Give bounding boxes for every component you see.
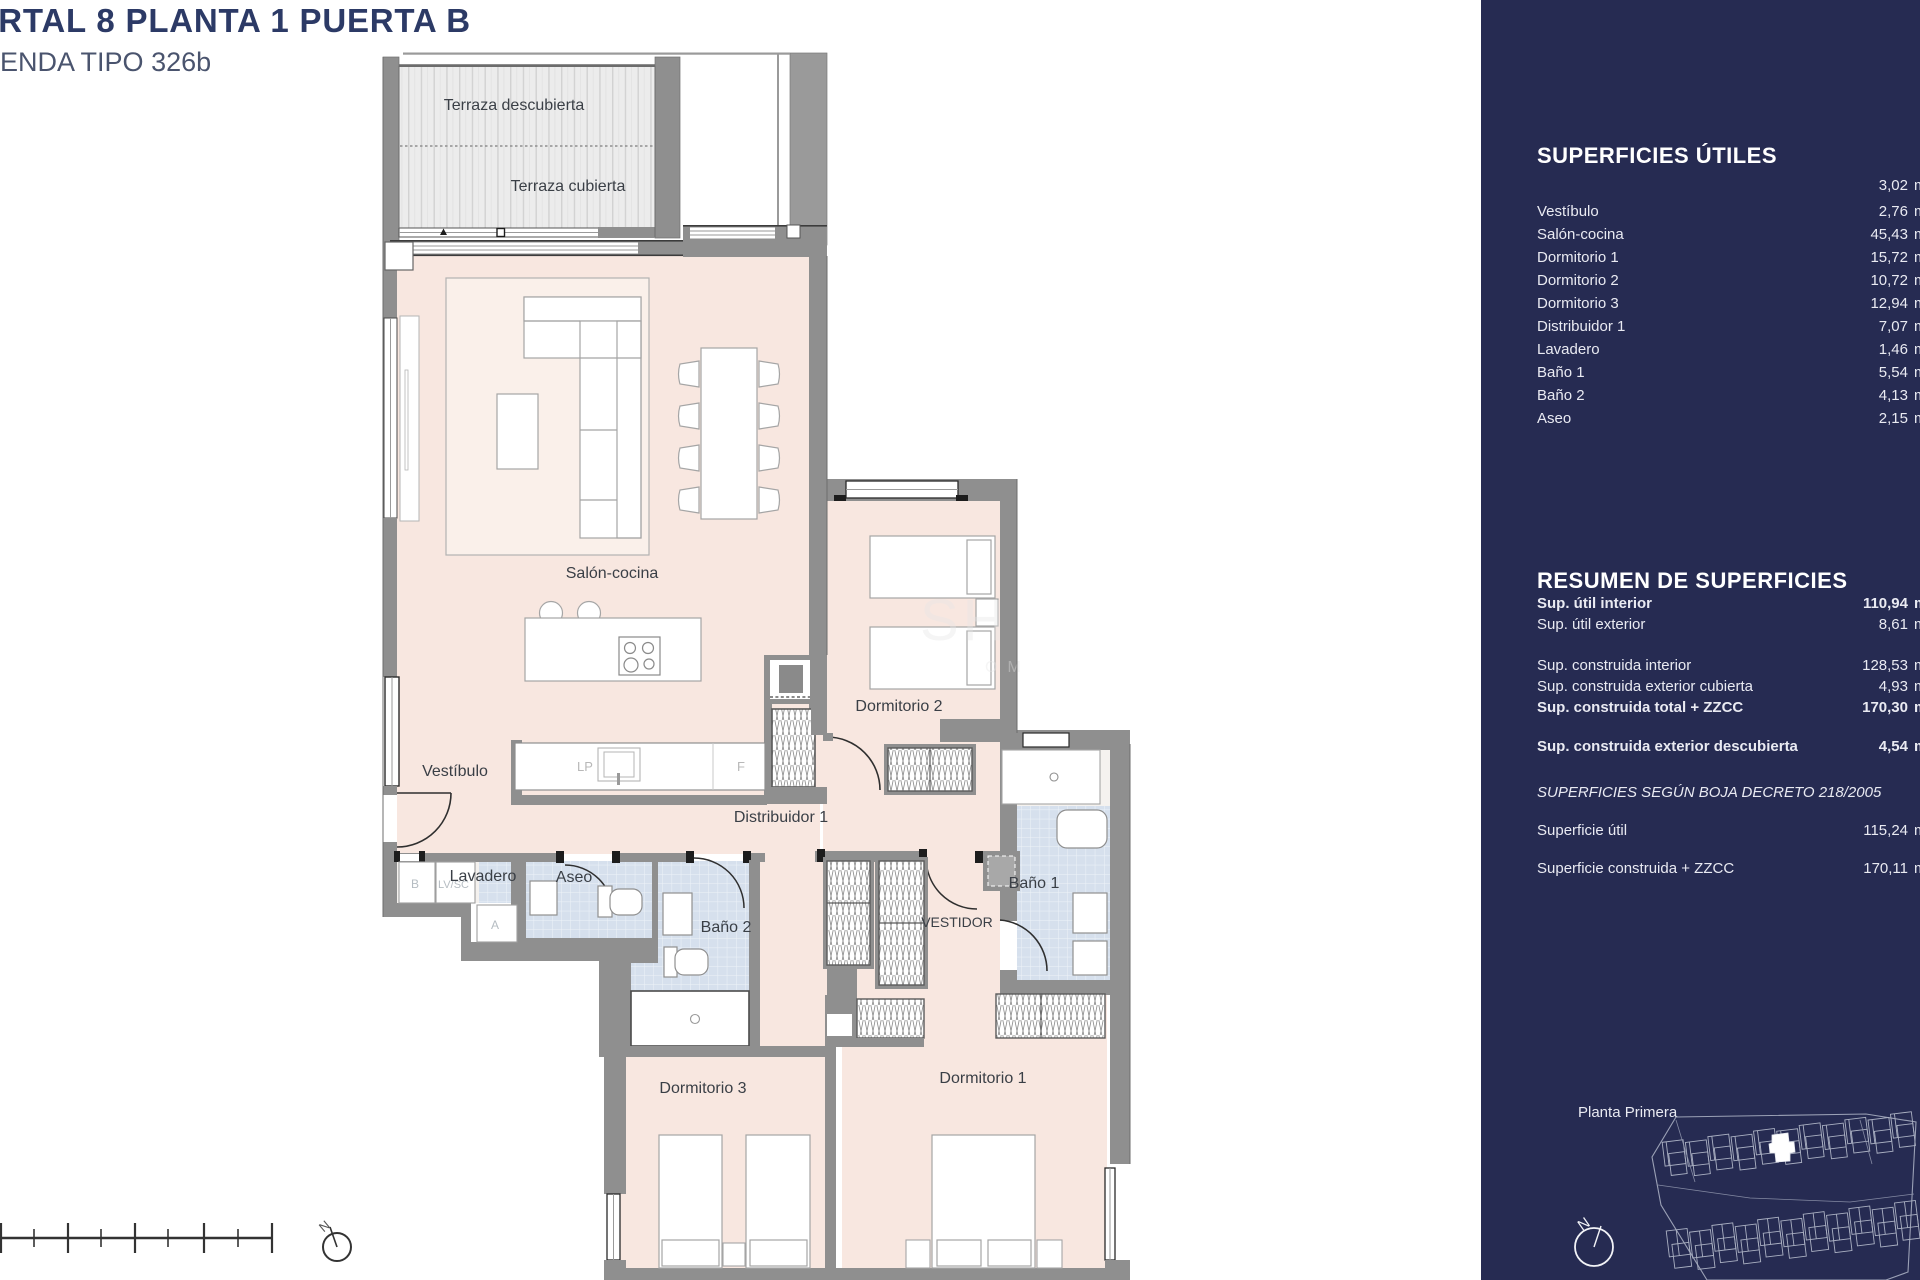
svg-text:Baño 1: Baño 1 — [1537, 364, 1585, 381]
svg-text:Vestíbulo: Vestíbulo — [1537, 203, 1599, 220]
svg-text:3,02: 3,02 — [1879, 177, 1908, 194]
svg-text:Sup. útil interior: Sup. útil interior — [1537, 595, 1652, 612]
svg-text:m²: m² — [1914, 318, 1920, 335]
svg-text:Sup. útil exterior: Sup. útil exterior — [1537, 616, 1645, 633]
svg-text:m²: m² — [1914, 410, 1920, 427]
svg-text:m²: m² — [1914, 203, 1920, 220]
svg-text:Dormitorio 2: Dormitorio 2 — [855, 698, 942, 715]
svg-text:m²: m² — [1914, 860, 1920, 877]
svg-text:45,43: 45,43 — [1870, 226, 1908, 243]
svg-text:m²: m² — [1914, 364, 1920, 381]
svg-text:A: A — [491, 918, 499, 932]
svg-text:Sup. construida exterior cubie: Sup. construida exterior cubierta — [1537, 678, 1754, 695]
svg-text:Terraza cubierta: Terraza cubierta — [511, 178, 626, 195]
svg-text:LP: LP — [577, 759, 593, 774]
svg-text:m²: m² — [1914, 341, 1920, 358]
svg-text:2,76: 2,76 — [1879, 203, 1908, 220]
svg-text:Vestíbulo: Vestíbulo — [422, 763, 488, 780]
svg-text:4,93: 4,93 — [1879, 678, 1908, 695]
svg-text:m²: m² — [1914, 738, 1920, 755]
svg-text:m²: m² — [1914, 387, 1920, 404]
svg-text:Superficie útil: Superficie útil — [1537, 822, 1627, 839]
svg-text:Aseo: Aseo — [1537, 410, 1571, 427]
svg-text:m²: m² — [1914, 595, 1920, 612]
svg-text:4,54: 4,54 — [1879, 738, 1909, 755]
svg-text:5,54: 5,54 — [1879, 364, 1908, 381]
svg-text:115,24: 115,24 — [1863, 822, 1908, 839]
svg-text:PORTAL 8 PLANTA 1 PUERTA B: PORTAL 8 PLANTA 1 PUERTA B — [0, 2, 471, 39]
svg-text:VIVIENDA TIPO 326b: VIVIENDA TIPO 326b — [0, 47, 211, 77]
svg-text:SUPERFICIES SEGÚN BOJA DECRETO: SUPERFICIES SEGÚN BOJA DECRETO 218/2005 — [1537, 784, 1882, 801]
svg-text:2,15: 2,15 — [1879, 410, 1908, 427]
svg-text:Distribuidor 1: Distribuidor 1 — [734, 809, 828, 826]
svg-text:B: B — [411, 877, 419, 891]
svg-text:128,53: 128,53 — [1862, 657, 1908, 674]
svg-text:m²: m² — [1914, 616, 1920, 633]
svg-text:170,30: 170,30 — [1862, 699, 1908, 716]
svg-text:Dormitorio 3: Dormitorio 3 — [659, 1080, 746, 1097]
svg-text:Dormitorio 3: Dormitorio 3 — [1537, 295, 1619, 312]
svg-text:m²: m² — [1914, 226, 1920, 243]
svg-text:m²: m² — [1914, 177, 1920, 194]
svg-text:Terraza descubierta: Terraza descubierta — [444, 97, 585, 114]
svg-text:Dormitorio 1: Dormitorio 1 — [939, 1070, 1026, 1087]
svg-text:8,61: 8,61 — [1879, 616, 1908, 633]
svg-text:Baño 2: Baño 2 — [1537, 387, 1585, 404]
svg-text:Salón-cocina: Salón-cocina — [566, 565, 659, 582]
svg-text:Dormitorio 1: Dormitorio 1 — [1537, 249, 1619, 266]
svg-text:OM: OM — [985, 659, 1031, 676]
svg-text:m²: m² — [1914, 272, 1920, 289]
svg-text:12,94: 12,94 — [1870, 295, 1908, 312]
svg-text:Aseo: Aseo — [556, 869, 593, 886]
svg-text:VESTIDOR: VESTIDOR — [921, 914, 993, 930]
svg-text:Dormitorio 2: Dormitorio 2 — [1537, 272, 1619, 289]
svg-text:Lavadero: Lavadero — [450, 868, 517, 885]
svg-text:15,72: 15,72 — [1870, 249, 1908, 266]
svg-text:Salón-cocina: Salón-cocina — [1537, 226, 1624, 243]
svg-text:110,94: 110,94 — [1863, 595, 1909, 612]
svg-text:170,11: 170,11 — [1863, 860, 1908, 877]
svg-text:SH: SH — [920, 588, 1009, 653]
svg-text:Planta Primera: Planta Primera — [1578, 1104, 1678, 1121]
svg-text:m²: m² — [1914, 249, 1920, 266]
svg-text:Baño 1: Baño 1 — [1009, 875, 1060, 892]
svg-text:Baño 2: Baño 2 — [701, 919, 752, 936]
svg-text:1,46: 1,46 — [1879, 341, 1908, 358]
svg-text:4,13: 4,13 — [1879, 387, 1908, 404]
svg-text:m²: m² — [1914, 699, 1920, 716]
svg-text:m²: m² — [1914, 295, 1920, 312]
svg-text:m²: m² — [1914, 657, 1920, 674]
svg-text:Sup. construida interior: Sup. construida interior — [1537, 657, 1691, 674]
svg-text:F: F — [737, 759, 745, 774]
svg-text:10,72: 10,72 — [1870, 272, 1908, 289]
svg-text:Lavadero: Lavadero — [1537, 341, 1600, 358]
svg-text:Sup. construida total + ZZCC: Sup. construida total + ZZCC — [1537, 699, 1743, 716]
svg-text:Sup. construida exterior descu: Sup. construida exterior descubierta — [1537, 738, 1799, 755]
svg-text:SUPERFICIES ÚTILES: SUPERFICIES ÚTILES — [1537, 143, 1777, 168]
svg-text:m²: m² — [1914, 678, 1920, 695]
svg-text:Superficie construida + ZZCC: Superficie construida + ZZCC — [1537, 860, 1734, 877]
svg-text:7,07: 7,07 — [1879, 318, 1908, 335]
svg-text:Distribuidor 1: Distribuidor 1 — [1537, 318, 1625, 335]
svg-text:RESUMEN DE SUPERFICIES: RESUMEN DE SUPERFICIES — [1537, 568, 1848, 593]
svg-text:m²: m² — [1914, 822, 1920, 839]
